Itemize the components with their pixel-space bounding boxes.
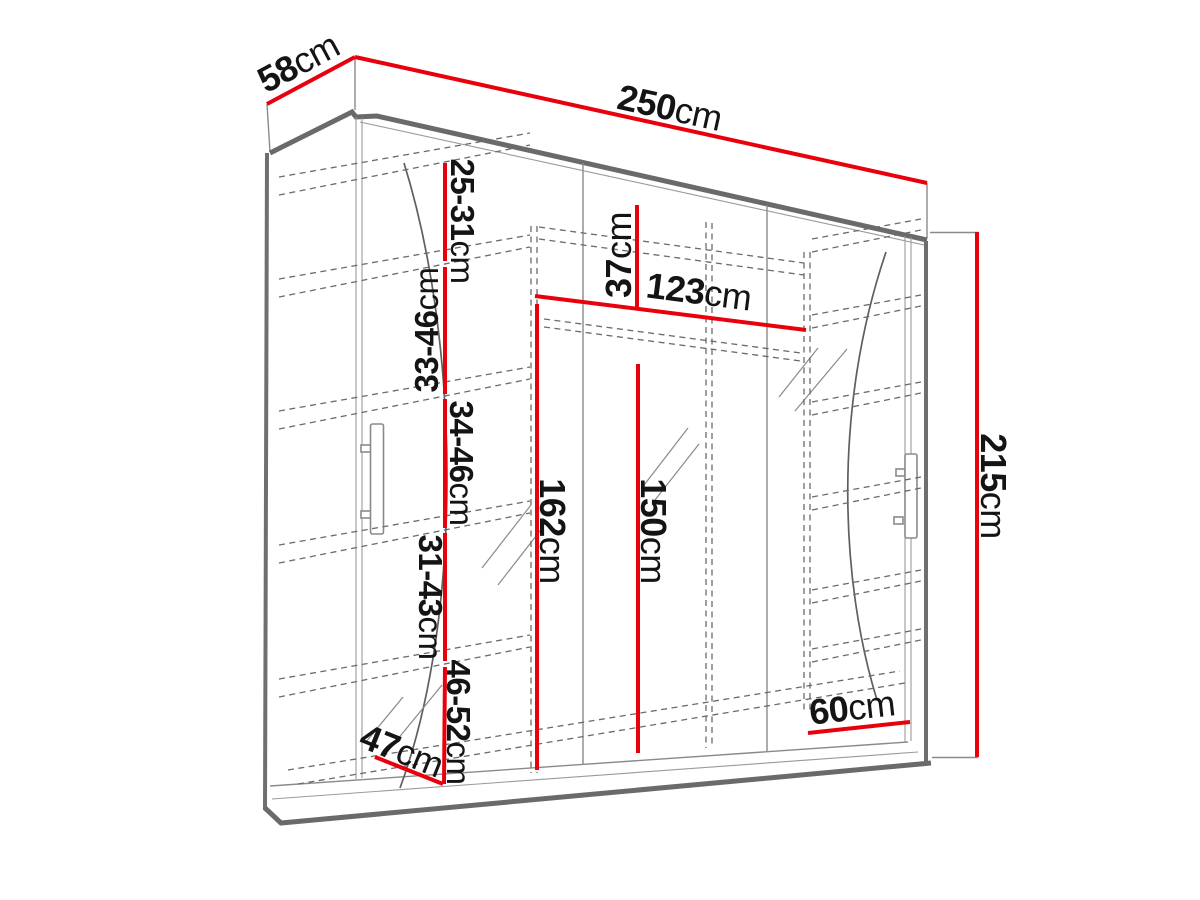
handle-bracket — [361, 511, 371, 518]
dim-label-left-section: 47cm — [354, 715, 449, 785]
handle-bracket — [361, 445, 371, 452]
right-door-handle — [894, 454, 917, 538]
wardrobe-dimension-diagram: 58cm 250cm 215cm 37cm 123cm 162cm 150cm … — [0, 0, 1200, 900]
dim-label-shelf-gap-2: 33-46cm — [408, 268, 445, 393]
dim-label-interior-162: 162cm — [533, 478, 574, 584]
floor-edge — [265, 763, 931, 823]
dim-label-width: 250cm — [614, 76, 726, 139]
left-edge — [265, 153, 267, 810]
top-face-left-edge — [267, 104, 270, 152]
height-extension-ticks — [930, 233, 978, 758]
diagram-canvas: 58cm 250cm 215cm 37cm 123cm 162cm 150cm … — [0, 0, 1200, 900]
dim-label-shelf-gap-1: 25-31cm — [445, 159, 482, 284]
handle-bracket — [894, 517, 903, 524]
dim-label-shelf-gap-3: 34-46cm — [444, 401, 481, 526]
handle-bracket — [896, 469, 905, 476]
dim-label-top-compartment: 37cm — [598, 212, 639, 298]
dim-label-height: 215cm — [974, 433, 1015, 539]
left-door-handle — [361, 424, 384, 534]
dim-label-interior-150: 150cm — [634, 478, 675, 584]
dim-label-shelf-gap-5: 46-52cm — [441, 660, 478, 785]
dim-label-shelf-gap-4: 31-43cm — [413, 535, 450, 660]
handle-bar — [905, 454, 917, 538]
handle-bar — [371, 424, 384, 534]
left-compartment-shelves — [279, 133, 530, 697]
